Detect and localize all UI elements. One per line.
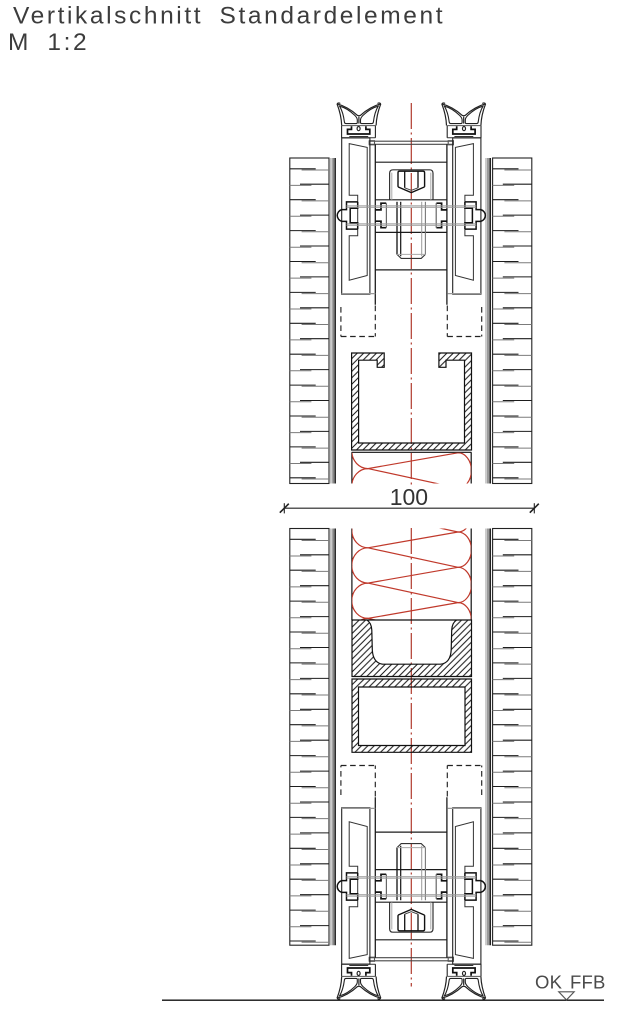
svg-text:Vertikalschnitt Standardelemen: Vertikalschnitt Standardelement: [13, 3, 445, 30]
svg-text:100: 100: [390, 484, 428, 510]
svg-text:M 1:2: M 1:2: [8, 29, 89, 56]
svg-text:OK FFB: OK FFB: [535, 972, 606, 993]
